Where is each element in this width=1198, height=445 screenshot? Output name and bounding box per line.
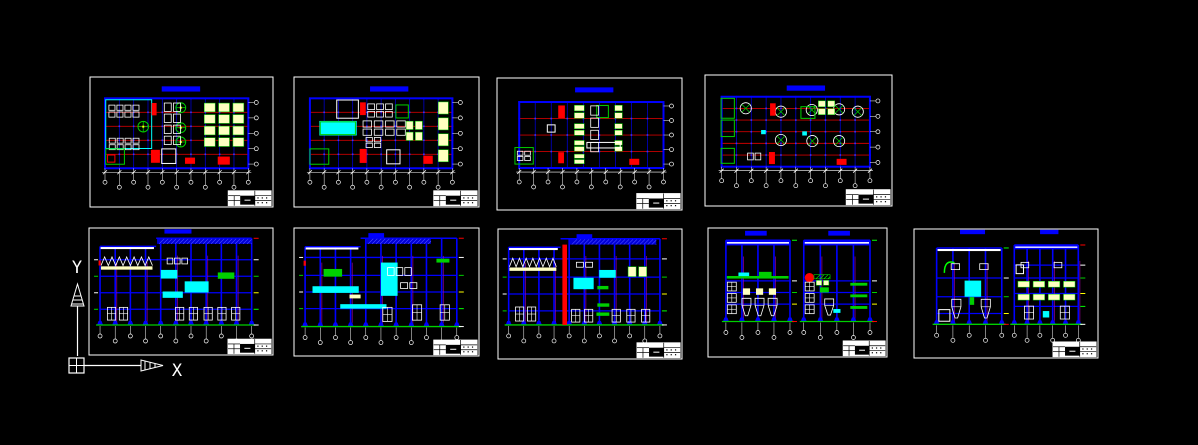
cad-drawings-layer[interactable]: YX (0, 0, 1198, 445)
grid-bubbles[interactable] (935, 325, 1004, 342)
title-block[interactable] (843, 341, 885, 356)
grid-bubbles[interactable] (1012, 325, 1080, 342)
drawing-section-pair-5[interactable] (914, 229, 1098, 358)
title-block[interactable] (228, 339, 271, 354)
title-block[interactable] (846, 190, 890, 205)
title-bar[interactable] (577, 234, 593, 238)
section-body[interactable] (94, 238, 259, 325)
drawing-floor-plan-4[interactable] (705, 75, 892, 206)
title-block[interactable] (637, 343, 680, 358)
title-bar[interactable] (1040, 230, 1058, 234)
title-bar[interactable] (370, 86, 408, 91)
drawing-frame (294, 77, 479, 207)
title-bar[interactable] (787, 85, 825, 90)
drawing-section-3[interactable] (498, 229, 682, 359)
title-block[interactable] (434, 191, 477, 206)
drawing-floor-plan-2[interactable] (294, 77, 479, 207)
model-space-canvas[interactable]: YX (0, 0, 1198, 445)
plan-body[interactable] (518, 101, 664, 169)
title-bar[interactable] (164, 229, 191, 233)
title-block[interactable] (228, 191, 271, 206)
grid-bubbles[interactable] (802, 323, 872, 340)
title-bar[interactable] (162, 86, 200, 91)
drawing-section-2[interactable] (294, 228, 479, 356)
drawing-section-1[interactable] (89, 228, 273, 355)
title-block[interactable] (637, 194, 680, 209)
plan-body[interactable] (721, 96, 871, 168)
title-bar[interactable] (960, 230, 985, 234)
drawing-floor-plan-1[interactable] (90, 77, 273, 207)
title-bar[interactable] (828, 231, 850, 236)
title-block[interactable] (434, 340, 477, 355)
drawing-frame (497, 78, 682, 210)
grid-bubbles[interactable] (516, 104, 673, 189)
ucs-x-label: X (172, 361, 183, 381)
title-bar[interactable] (575, 87, 613, 92)
drawing-frame (705, 75, 892, 206)
drawing-section-pair-4[interactable] (708, 228, 887, 357)
drawing-floor-plan-3[interactable] (497, 78, 682, 210)
grid-bubbles[interactable] (724, 323, 792, 340)
ucs-y-label: Y (72, 258, 82, 278)
title-bar[interactable] (745, 231, 767, 236)
grid-bubbles[interactable] (507, 326, 662, 343)
title-bar[interactable] (368, 233, 384, 237)
title-block[interactable] (1053, 342, 1096, 357)
